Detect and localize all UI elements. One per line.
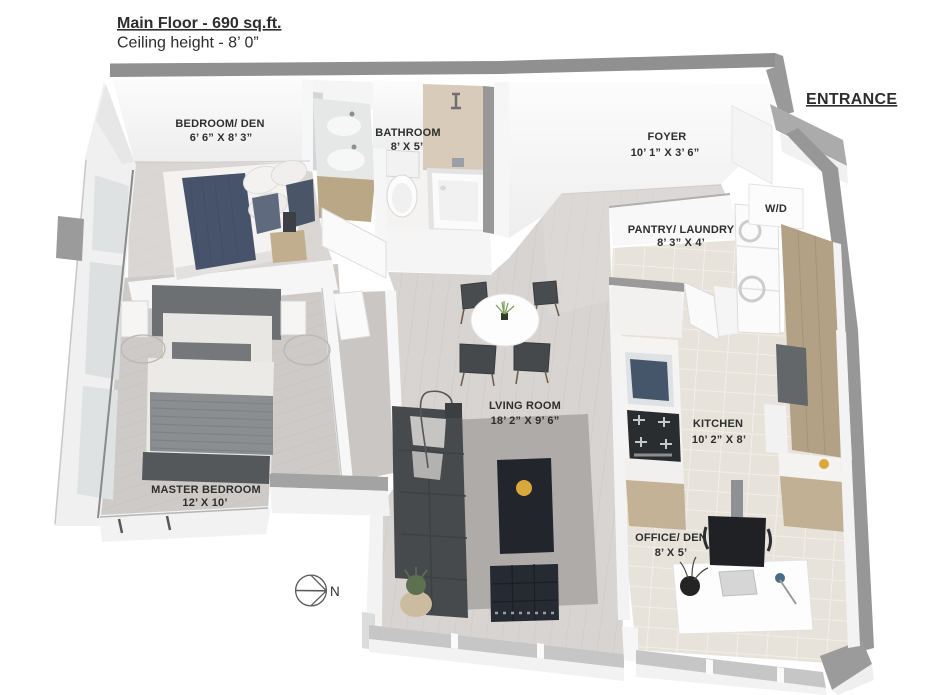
svg-text:BATHROOM: BATHROOM (375, 127, 441, 139)
svg-text:12’ X 10’: 12’ X 10’ (182, 497, 227, 509)
svg-text:PANTRY/ LAUNDRY: PANTRY/ LAUNDRY (628, 224, 735, 236)
svg-text:10’ 2” X 8’: 10’ 2” X 8’ (692, 434, 746, 446)
svg-text:OFFICE/ DEN: OFFICE/ DEN (635, 532, 707, 544)
svg-text:18’ 2” X 9’ 6”: 18’ 2” X 9’ 6” (491, 415, 560, 427)
svg-text:MASTER BEDROOM: MASTER BEDROOM (151, 484, 261, 496)
svg-text:Ceiling height - 8’ 0”: Ceiling height - 8’ 0” (117, 35, 259, 52)
svg-text:10’ 1” X 3’ 6”: 10’ 1” X 3’ 6” (631, 147, 700, 159)
svg-text:6’ 6” X 8’ 3”: 6’ 6” X 8’ 3” (190, 132, 253, 144)
svg-text:8’ X 5’: 8’ X 5’ (655, 547, 688, 559)
svg-text:8’ X 5’: 8’ X 5’ (391, 141, 424, 153)
svg-text:N: N (330, 584, 340, 599)
svg-text:BEDROOM/ DEN: BEDROOM/ DEN (175, 118, 264, 130)
svg-text:LVING ROOM: LVING ROOM (489, 400, 561, 412)
svg-text:FOYER: FOYER (648, 131, 687, 143)
svg-text:W/D: W/D (765, 203, 787, 215)
svg-text:8’ 3” X 4’: 8’ 3” X 4’ (657, 237, 705, 249)
svg-text:ENTRANCE: ENTRANCE (806, 91, 897, 108)
svg-text:Main Floor - 690 sq.ft.: Main Floor - 690 sq.ft. (117, 15, 281, 32)
svg-text:KITCHEN: KITCHEN (693, 418, 743, 430)
